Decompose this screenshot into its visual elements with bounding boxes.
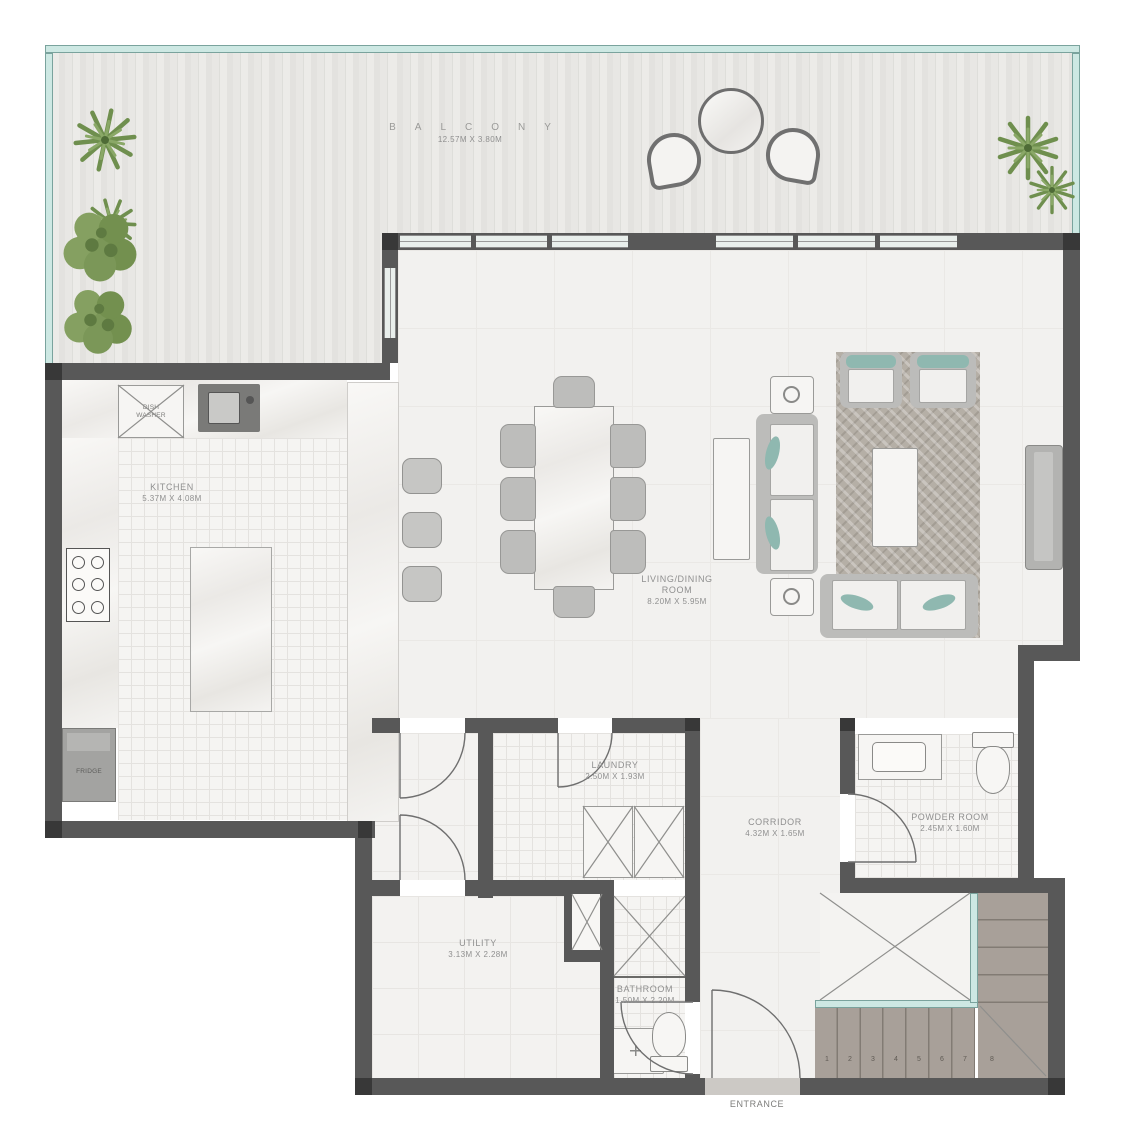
side-table xyxy=(770,578,814,616)
powder-room-dims: 2.45M X 1.60M xyxy=(911,824,989,833)
tv-cabinet-top xyxy=(1034,452,1053,561)
balcony-glass-top xyxy=(45,45,1080,53)
wall xyxy=(1063,233,1080,661)
kitchen-island xyxy=(190,547,272,712)
door-jamb xyxy=(45,821,62,838)
wall xyxy=(1018,645,1034,878)
wall xyxy=(840,878,1048,893)
wall xyxy=(372,718,400,733)
utility-label: UTILITY 3.13M X 2.28M xyxy=(448,938,507,959)
door-jamb xyxy=(685,718,700,731)
balcony-floor-left xyxy=(52,52,390,365)
dining-chair xyxy=(610,530,646,574)
window xyxy=(552,235,628,248)
dining-chair xyxy=(500,424,536,468)
kitchen-name: KITCHEN xyxy=(142,482,201,492)
step-number: 2 xyxy=(848,1056,852,1063)
wall xyxy=(478,718,493,898)
door-jamb xyxy=(355,1078,372,1095)
armchair-cushion xyxy=(917,355,969,368)
wall xyxy=(685,1074,700,1095)
door-jamb xyxy=(1063,233,1080,250)
entrance-name: ENTRANCE xyxy=(730,1099,784,1109)
wall xyxy=(465,880,564,896)
wall xyxy=(372,880,400,896)
step-number: 4 xyxy=(894,1056,898,1063)
wall xyxy=(612,718,685,733)
door-jamb xyxy=(840,718,855,731)
armchair-cushion xyxy=(846,355,896,368)
corridor-name: CORRIDOR xyxy=(745,817,804,827)
wall xyxy=(45,363,62,838)
kitchen-peninsula-counter xyxy=(347,382,399,822)
dining-chair xyxy=(610,477,646,521)
entrance-label: ENTRANCE xyxy=(730,1099,784,1109)
bar-stool xyxy=(402,512,442,548)
wall xyxy=(355,1078,705,1095)
dryer xyxy=(634,806,684,878)
balcony-name: BALCONY xyxy=(389,122,570,133)
step-number: 5 xyxy=(917,1056,921,1063)
floor-plan: DISH WASHER FRIDGE xyxy=(0,0,1130,1142)
dining-chair xyxy=(610,424,646,468)
living-dining-dims: 8.20M X 5.95M xyxy=(641,597,712,606)
corridor-dims: 4.32M X 1.65M xyxy=(745,829,804,838)
fridge: FRIDGE xyxy=(62,728,116,802)
sink-basin xyxy=(208,392,240,424)
powder-sink-basin xyxy=(872,742,926,772)
bar-stool xyxy=(402,566,442,602)
wall xyxy=(45,821,375,838)
fridge-label: FRIDGE xyxy=(76,768,102,776)
door-jamb xyxy=(45,363,62,380)
step-number: 1 xyxy=(825,1056,829,1063)
window xyxy=(880,235,957,248)
armchair xyxy=(840,352,902,408)
powder-toilet xyxy=(976,746,1010,794)
living-dining-name2: ROOM xyxy=(641,585,712,595)
shower xyxy=(614,896,685,978)
dining-table xyxy=(534,406,614,590)
burner-icon xyxy=(91,601,104,614)
laundry-label: LAUNDRY 2.50M X 1.93M xyxy=(585,760,644,781)
window xyxy=(384,268,396,338)
door-jamb xyxy=(358,821,372,838)
cooktop xyxy=(66,548,110,622)
shaft-void xyxy=(572,894,602,950)
living-dining-label: LIVING/DINING ROOM 8.20M X 5.95M xyxy=(641,574,712,606)
burner-icon xyxy=(91,578,104,591)
utility-dims: 3.13M X 2.28M xyxy=(448,950,507,959)
bathroom-toilet xyxy=(652,1012,686,1058)
side-table xyxy=(770,376,814,414)
burner-icon xyxy=(72,556,85,569)
decor-icon xyxy=(783,588,800,605)
laundry-name: LAUNDRY xyxy=(585,760,644,770)
armchair-seat xyxy=(848,369,894,403)
kitchen-sink xyxy=(198,384,260,432)
step-number: 8 xyxy=(990,1056,994,1063)
wall xyxy=(840,862,855,893)
fridge-top xyxy=(67,733,110,751)
washer xyxy=(583,806,633,878)
dining-chair xyxy=(500,530,536,574)
bathroom-name: BATHROOM xyxy=(615,984,674,994)
window xyxy=(798,235,875,248)
powder-room-label: POWDER ROOM 2.45M X 1.60M xyxy=(911,812,989,833)
balcony-glass-right xyxy=(1072,53,1080,237)
sink-faucet xyxy=(246,396,254,404)
burner-icon xyxy=(72,601,85,614)
stair-treads-right xyxy=(978,893,1048,1003)
drain-icon xyxy=(630,1045,641,1056)
stair-glass-vertical xyxy=(970,893,978,1003)
bathroom-dims: 1.50M X 2.20M xyxy=(615,996,674,1005)
entrance-threshold xyxy=(705,1078,800,1095)
wall xyxy=(355,821,372,1095)
coffee-table xyxy=(872,448,918,547)
powder-room-name: POWDER ROOM xyxy=(911,812,989,822)
kitchen-dims: 5.37M X 4.08M xyxy=(142,494,201,503)
living-dining-name: LIVING/DINING xyxy=(641,574,712,584)
wall xyxy=(465,718,558,733)
bathroom-label: BATHROOM 1.50M X 2.20M xyxy=(615,984,674,1005)
bathroom-toilet-tank xyxy=(650,1056,688,1072)
burner-icon xyxy=(91,556,104,569)
dining-chair xyxy=(553,376,595,408)
stair-treads-bottom xyxy=(815,1008,975,1078)
decor-icon xyxy=(783,386,800,403)
window xyxy=(716,235,793,248)
door-jamb xyxy=(1048,1078,1065,1095)
door-jamb xyxy=(382,233,398,250)
balcony-table xyxy=(698,88,764,154)
stair-landing xyxy=(820,893,970,1000)
wall xyxy=(800,1078,1065,1095)
balcony-label: BALCONY 12.57M X 3.80M xyxy=(389,122,551,144)
armchair xyxy=(910,352,976,408)
wall xyxy=(45,363,390,380)
balcony-glass-left xyxy=(45,53,53,367)
wall xyxy=(1048,878,1065,1095)
stair-winder xyxy=(978,1003,1048,1078)
burner-icon xyxy=(72,578,85,591)
wall xyxy=(600,880,614,1080)
dishwasher: DISH WASHER xyxy=(118,385,184,438)
step-number: 3 xyxy=(871,1056,875,1063)
step-number: 7 xyxy=(963,1056,967,1063)
stair-glass-horizontal xyxy=(815,1000,978,1008)
dishwasher-label: DISH WASHER xyxy=(136,403,166,419)
step-number: 6 xyxy=(940,1056,944,1063)
dining-chair xyxy=(553,586,595,618)
dining-chair xyxy=(500,477,536,521)
laundry-dims: 2.50M X 1.93M xyxy=(585,772,644,781)
powder-sink-counter xyxy=(858,734,942,780)
wall xyxy=(685,718,700,1002)
utility-name: UTILITY xyxy=(448,938,507,948)
bar-stool xyxy=(402,458,442,494)
console-bench xyxy=(713,438,750,560)
kitchen-label: KITCHEN 5.37M X 4.08M xyxy=(142,482,201,503)
tv-cabinet xyxy=(1025,445,1063,570)
armchair-seat xyxy=(919,369,967,403)
corridor-label: CORRIDOR 4.32M X 1.65M xyxy=(745,817,804,838)
window xyxy=(400,235,471,248)
window xyxy=(476,235,547,248)
exterior-mask xyxy=(1034,661,1130,878)
balcony-dims: 12.57M X 3.80M xyxy=(389,135,551,144)
